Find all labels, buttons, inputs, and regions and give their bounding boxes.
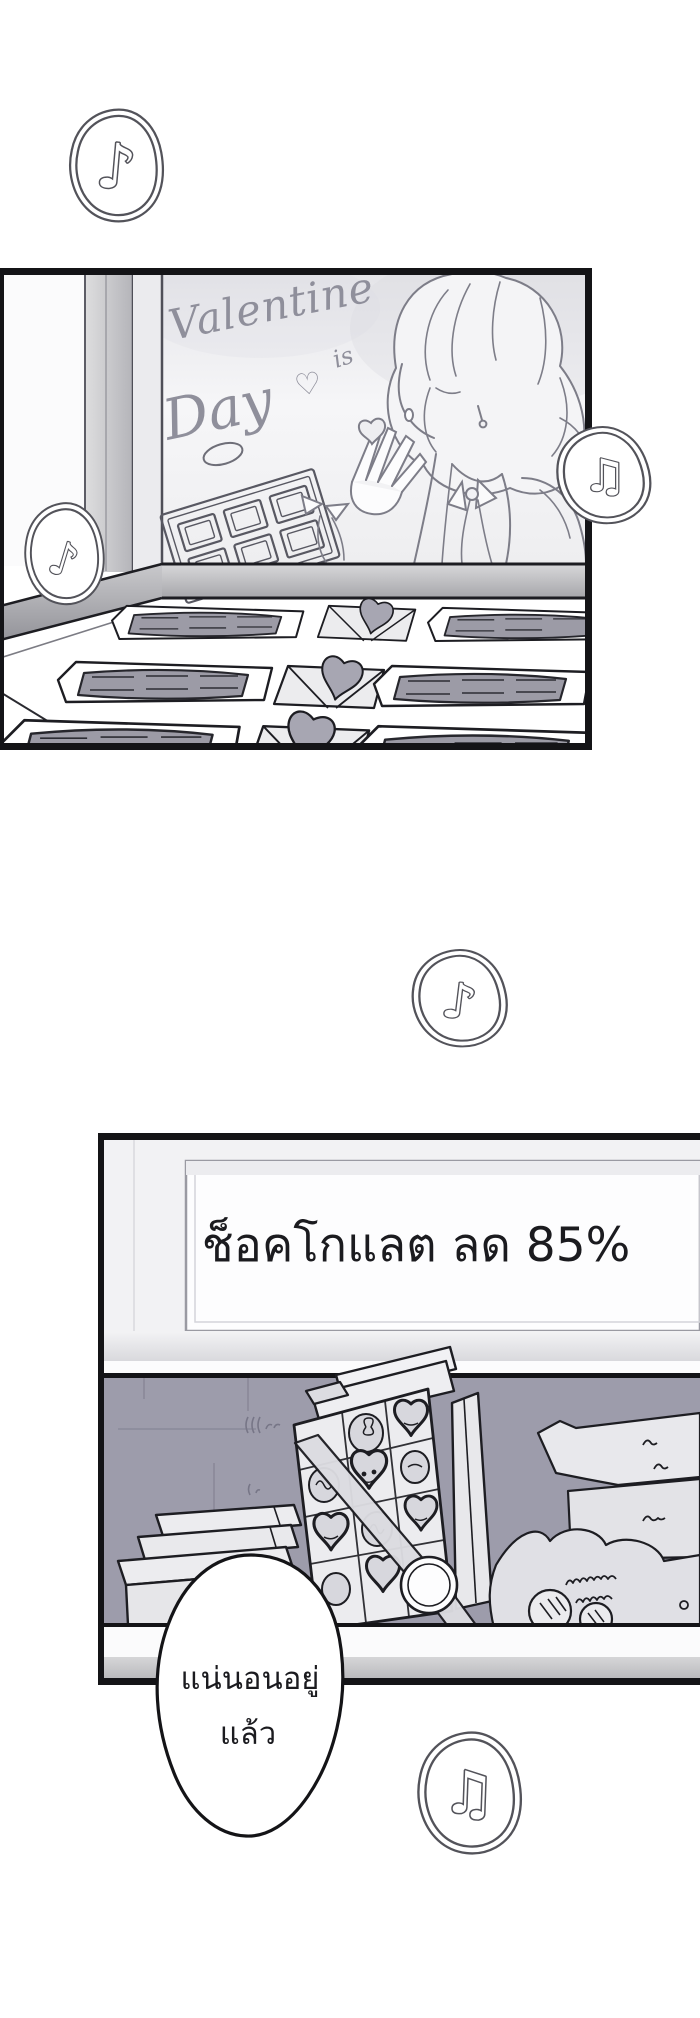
music-note-icon: ♪ <box>93 128 139 204</box>
music-note-bubble-3: ♪ <box>18 498 110 610</box>
speech-bubble: แน่นอนอยู่ แล้ว <box>136 1552 366 1846</box>
comic-page: ♪ <box>0 0 700 2018</box>
music-note-bubble-2: ♫ <box>550 424 656 530</box>
music-note-icon: ♫ <box>441 1758 497 1828</box>
music-note-bubble-5: ♫ <box>408 1726 528 1860</box>
music-note-icon: ♫ <box>582 451 628 502</box>
sale-sign-text: ช็อคโกแลต ลด 85% <box>202 1216 631 1273</box>
sale-sign: ช็อคโกแลต ลด 85% <box>186 1161 700 1331</box>
music-note-icon: ♪ <box>438 973 480 1031</box>
poster-heart-doodle-icon: ♡ <box>292 366 324 404</box>
speech-text-line1: แน่นอนอยู่ <box>181 1661 320 1697</box>
music-note-bubble-1: ♪ <box>60 102 172 230</box>
speech-text-line2: แล้ว <box>220 1716 276 1752</box>
music-note-bubble-4: ♪ <box>404 946 514 1052</box>
